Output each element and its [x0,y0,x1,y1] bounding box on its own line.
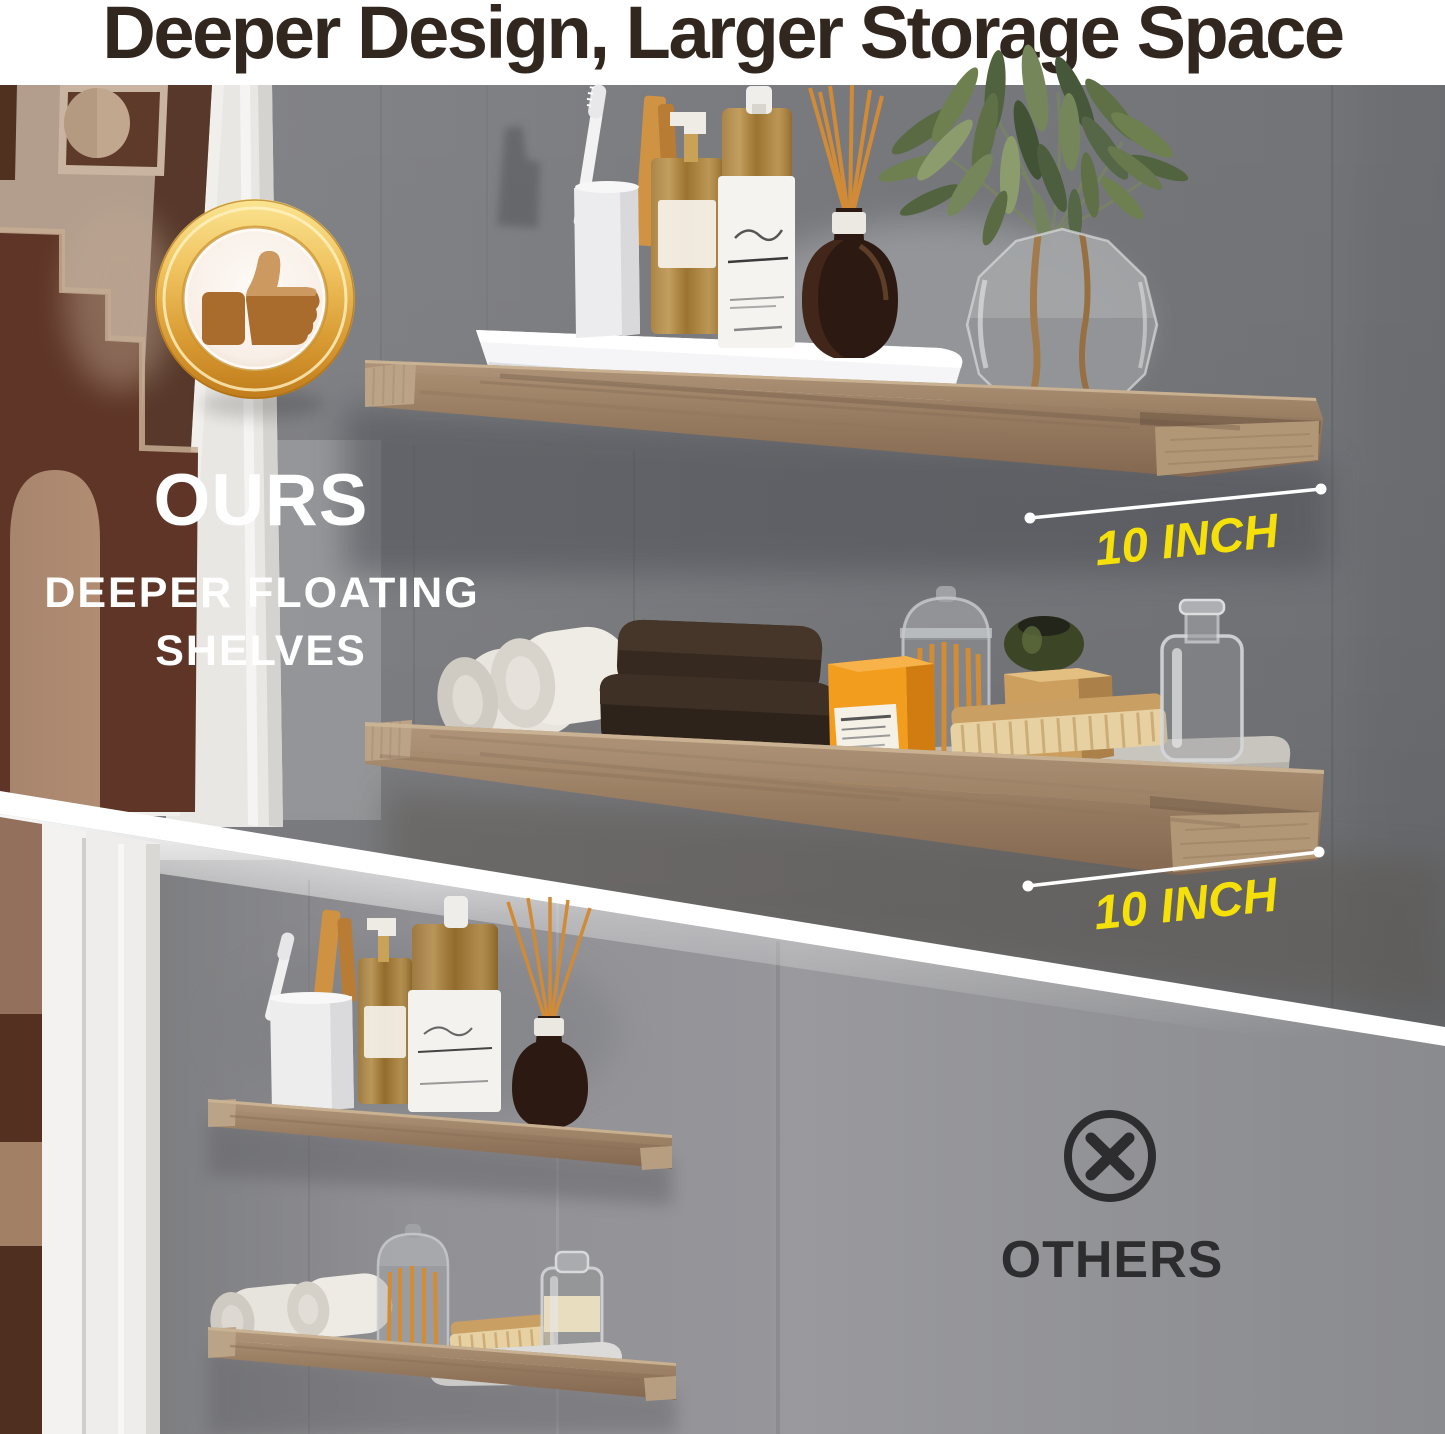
svg-text:DEEPER FLOATING: DEEPER FLOATING [44,569,479,617]
svg-text:OURS: OURS [154,460,369,541]
svg-text:SHELVES: SHELVES [155,627,367,675]
svg-text:OTHERS: OTHERS [1001,1231,1224,1289]
